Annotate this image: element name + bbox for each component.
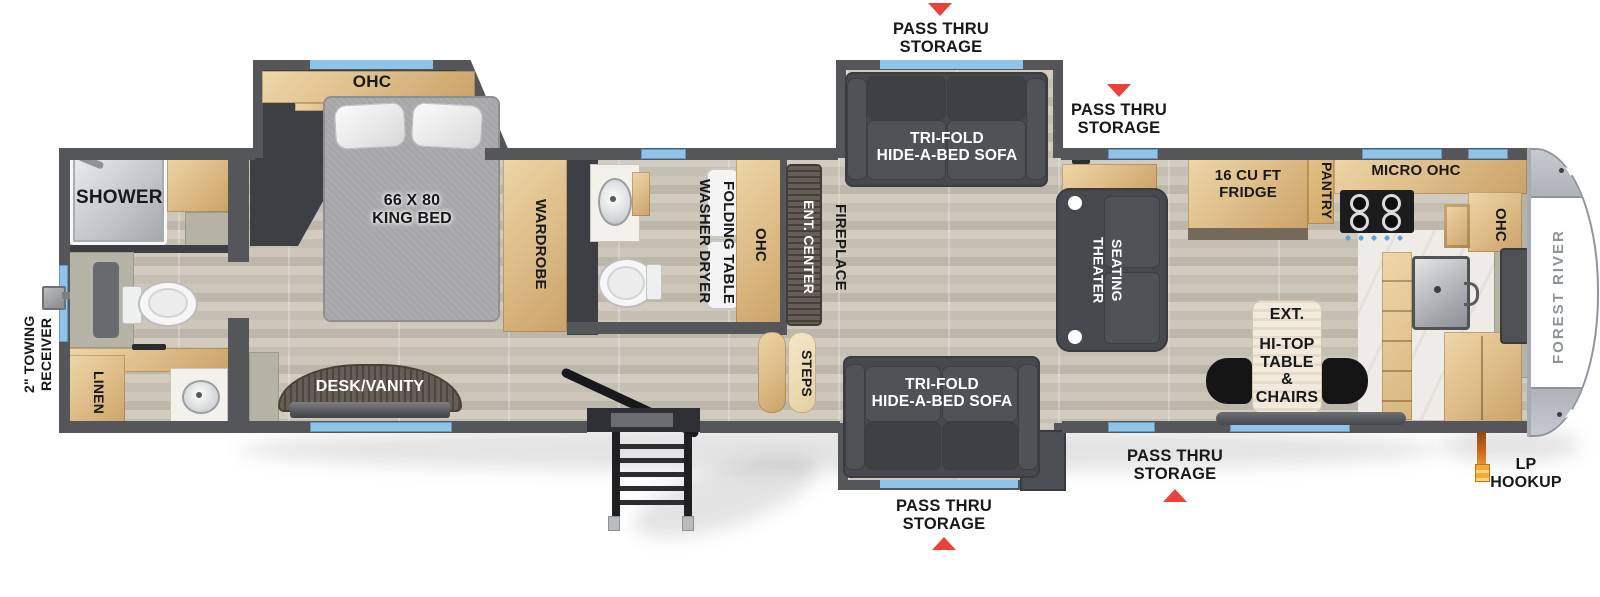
stove (1340, 190, 1414, 233)
brand-label: FOREST RIVER (1551, 202, 1577, 392)
kitchen-ohc-label: OHC (1482, 200, 1508, 250)
stair-tread-4 (620, 486, 684, 491)
cap-rivet-bottom (1557, 412, 1562, 417)
sofa-bottom-back-right (942, 422, 1018, 470)
pass-thru-label-3: PASS THRU STORAGE (878, 497, 1010, 533)
folding-table-label: FOLDING TABLE (712, 172, 736, 314)
pass-thru-arrow-3 (932, 537, 956, 550)
towing-label-2: RECEIVER (39, 306, 54, 402)
pass-thru-label-4: PASS THRU STORAGE (1109, 447, 1241, 483)
lp-pipe-cap (1475, 464, 1490, 482)
lp-hookup-label: LP HOOKUP (1490, 456, 1562, 491)
sofa-top-back-left (867, 76, 946, 120)
bath-bedroom-wall-bottom (228, 318, 249, 433)
bottom-window-2 (1108, 422, 1155, 432)
linen-label: LINEN (82, 360, 106, 424)
kitchen-cabinet-bottom-divider (1481, 336, 1483, 420)
fridge-label: 16 CU FT FRIDGE (1200, 168, 1296, 201)
bedroom-partition (249, 352, 279, 428)
towing-label-1: 2" TOWING (22, 306, 37, 402)
hitop-chair-right (1322, 358, 1368, 404)
top-window-3 (1362, 149, 1442, 159)
top-window-1 (641, 149, 686, 159)
kitchen-sink-drain (1434, 286, 1441, 293)
theater-label-2: SEATING (1108, 228, 1123, 312)
stair-foot-right (682, 516, 694, 531)
stair-tread-2 (620, 458, 684, 463)
rear-sink-drain (196, 392, 202, 398)
pass-thru-arrow-2 (1107, 84, 1131, 97)
washer-dryer-label: WASHER DRYER (688, 168, 712, 314)
stair-foot-left (608, 516, 620, 531)
pass-thru-arrow-1 (928, 3, 952, 16)
desk-vanity-base (290, 402, 450, 418)
bottom-window-1 (310, 422, 452, 432)
wardrobe-label: WARDROBE (522, 162, 548, 326)
bed-pillow-right (411, 102, 483, 150)
sofa-top-label: TRI-FOLD HIDE-A-BED SOFA (858, 130, 1036, 164)
cap-bottom-band (1531, 387, 1597, 435)
hitop-chair-left (1206, 358, 1252, 404)
fridge-counter-edge (1188, 228, 1308, 240)
burner-icon-2 (1382, 194, 1401, 213)
burner-icon-3 (1350, 212, 1369, 231)
midbath-hall-wall (567, 322, 786, 334)
stove-knobs (1342, 233, 1408, 243)
cap-rivet-top (1559, 168, 1564, 173)
hitch-stem (62, 292, 70, 299)
top-sofa-slideout-window (880, 60, 1023, 69)
towing-label-group: 2" TOWING RECEIVER (22, 306, 55, 402)
kitchen-drawer-bank (1382, 252, 1412, 420)
bottom-wall-2 (700, 421, 840, 433)
lp-pipe (1477, 432, 1486, 466)
ent-center-label: ENT. CENTER (792, 192, 816, 302)
shower-label: SHOWER (76, 188, 162, 209)
midbath-sink-bowl (598, 178, 632, 226)
micro-ohc-label: MICRO OHC (1360, 163, 1472, 180)
king-bed-label: 66 X 80 KING BED (352, 192, 472, 227)
laundry-ohc-label: OHC (744, 218, 768, 272)
stair-tread-1 (620, 444, 684, 449)
steps-label: STEPS (790, 342, 814, 404)
cap-top-band (1531, 150, 1597, 198)
sofa-bottom-label: TRI-FOLD HIDE-A-BED SOFA (853, 376, 1031, 410)
kitchen-cabinet-bottom (1444, 332, 1522, 424)
interior-step-1 (758, 332, 786, 413)
theater-label-group: THEATER SEATING (1090, 228, 1124, 312)
bedroom-ohc-label: OHC (332, 73, 412, 92)
stair-tread-3 (620, 472, 684, 477)
midbath-toilet-seat (607, 266, 645, 300)
pantry-label: PANTRY (1308, 160, 1334, 222)
rear-faucet (132, 344, 166, 350)
sofa-bottom (843, 356, 1040, 478)
sofa-top-arm-left (847, 78, 867, 180)
sofa-top-back-right (947, 76, 1026, 120)
midbath-sink-drain (610, 196, 616, 202)
burner-icon-1 (1350, 194, 1369, 213)
bottom-sofa-slideout-window (880, 480, 1018, 488)
pass-thru-label-2: PASS THRU STORAGE (1053, 101, 1185, 137)
sofa-top-arm-right (1026, 78, 1046, 180)
ext-label: EXT. (1262, 306, 1312, 324)
pass-thru-label-1: PASS THRU STORAGE (875, 20, 1007, 56)
entry-landing-inner (611, 413, 673, 427)
stair-tread-5 (620, 500, 684, 505)
top-window-4 (1468, 149, 1508, 159)
desk-vanity-label: DESK/VANITY (300, 378, 440, 396)
nose-tv (1500, 248, 1530, 344)
theater-label-1: THEATER (1090, 228, 1105, 312)
bath-bedroom-wall-top (228, 148, 249, 262)
awning-rail (1216, 412, 1406, 425)
pass-thru-arrow-4 (1163, 489, 1187, 502)
theater-cupholder-top (1068, 196, 1082, 210)
top-window-2 (1108, 149, 1158, 159)
stair-rail-right (684, 432, 692, 520)
fireplace-label: FIREPLACE (824, 196, 848, 298)
bedroom-slideout-window (310, 60, 433, 69)
midbath-cabinet (632, 172, 650, 216)
sofa-bottom-back-left (865, 422, 941, 470)
rear-bath-counter (167, 152, 229, 212)
midbath-toilet-tank (646, 264, 662, 300)
bed-pillow-left (334, 102, 406, 150)
kitchen-sink (1412, 256, 1470, 330)
theater-cupholder-bottom (1068, 330, 1082, 344)
rear-mirror (93, 262, 119, 338)
entry-stairs (560, 430, 720, 530)
rear-toilet-seat (148, 288, 188, 318)
burner-icon-4 (1382, 212, 1401, 231)
entry-landing (587, 408, 700, 432)
hitop-label: HI-TOP TABLE & CHAIRS (1255, 336, 1319, 406)
stair-rail-left (612, 432, 620, 520)
rv-floorplan: SHOWER LINEN OHC 66 X 80 KING BED DESK/V… (0, 0, 1600, 597)
kitchen-cabinet-small (1444, 204, 1470, 248)
top-wall-1 (59, 148, 255, 160)
